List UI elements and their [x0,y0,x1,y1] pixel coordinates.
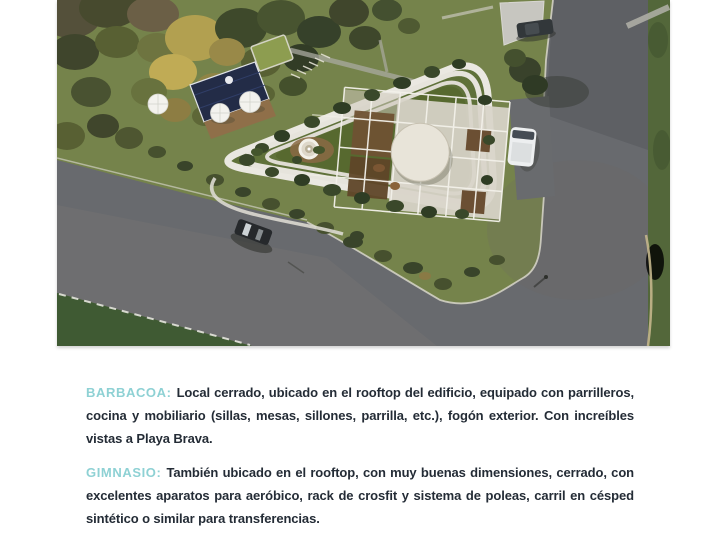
amenity-label-barbacoa: BARBACOA: [86,385,172,400]
brochure-page: BARBACOA:Local cerrado, ubicado en el ro… [0,0,720,540]
amenity-label-gimnasio: GIMNASIO: [86,465,161,480]
amenity-description-gimnasio: También ubicado en el rooftop, con muy b… [86,465,634,526]
aerial-render-image [57,0,670,346]
amenity-paragraph-gimnasio: GIMNASIO:También ubicado en el rooftop, … [86,461,634,530]
aerial-render-svg [57,0,670,346]
amenity-paragraph-barbacoa: BARBACOA:Local cerrado, ubicado en el ro… [86,381,634,450]
amenities-text: BARBACOA:Local cerrado, ubicado en el ro… [86,381,634,540]
